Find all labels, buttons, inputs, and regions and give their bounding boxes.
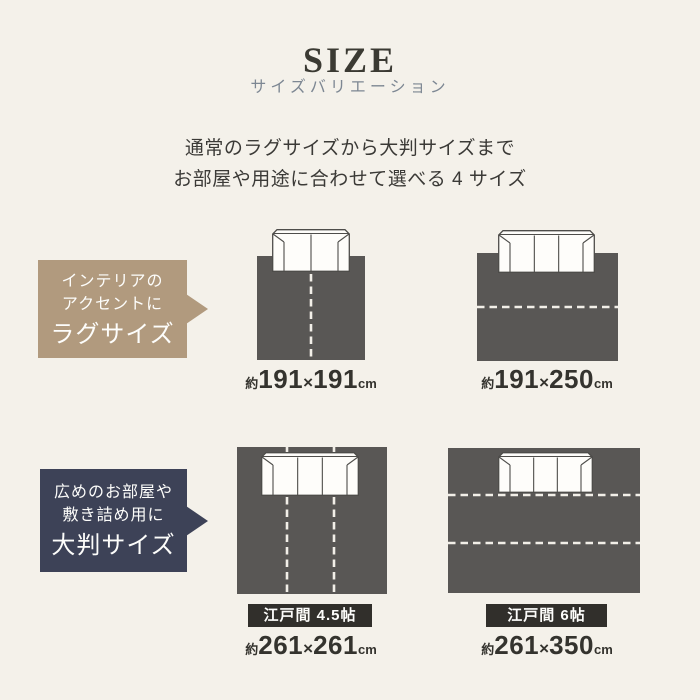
multiply-sign: × [303,373,313,392]
size-depth: 261 [313,630,358,660]
intro-line-1: 通常のラグサイズから大判サイズまで [0,133,700,164]
size-caption-261x261: 約261×261cm [211,630,411,661]
callout-large-line-2: 敷き詰め用に [40,504,187,527]
multiply-sign: × [303,639,313,658]
sofa-icon [499,453,593,493]
rug-diagram-191x191 [253,228,369,361]
size-approx: 約 [245,642,258,657]
size-depth: 250 [549,364,594,394]
size-width: 261 [258,630,303,660]
size-caption-191x191: 約191×191cm [211,364,411,395]
rug-diagram-261x350 [444,444,644,596]
sofa-icon [273,230,350,272]
size-infographic: SIZE サイズバリエーション 通常のラグサイズから大判サイズまで お部屋や用途… [0,0,700,700]
tatami-tag-6: 江戸間 6帖 [486,604,607,627]
callout-rug-title: ラグサイズ [38,321,187,349]
intro-text: 通常のラグサイズから大判サイズまで お部屋や用途に合わせて選べる 4 サイズ [0,133,700,195]
callout-rug-size: インテリアの アクセントに ラグサイズ [38,260,187,358]
size-width: 191 [258,364,303,394]
callout-rug-line-1: インテリアの [38,270,187,293]
size-unit: cm [358,376,377,391]
size-width: 191 [494,364,539,394]
sofa-icon [262,453,359,496]
size-unit: cm [358,642,377,657]
sofa-icon [499,231,595,273]
multiply-sign: × [539,639,549,658]
size-approx: 約 [245,376,258,391]
tatami-tag-4-5: 江戸間 4.5帖 [248,604,372,627]
intro-line-2: お部屋や用途に合わせて選べる 4 サイズ [0,164,700,195]
size-depth: 350 [549,630,594,660]
size-caption-261x350: 約261×350cm [447,630,647,661]
size-depth: 191 [313,364,358,394]
multiply-sign: × [539,373,549,392]
size-unit: cm [594,376,613,391]
callout-large-title: 大判サイズ [40,532,187,560]
callout-rug-line-2: アクセントに [38,293,187,316]
size-width: 261 [494,630,539,660]
page-subtitle: サイズバリエーション [0,79,700,97]
size-unit: cm [594,642,613,657]
page-title: SIZE [0,42,700,78]
size-caption-191x250: 約191×250cm [447,364,647,395]
rug-diagram-261x261 [233,443,391,598]
rug-diagram-191x250 [473,228,622,363]
callout-large-size: 広めのお部屋や 敷き詰め用に 大判サイズ [40,469,187,572]
size-approx: 約 [481,642,494,657]
callout-large-line-1: 広めのお部屋や [40,481,187,504]
size-approx: 約 [481,376,494,391]
